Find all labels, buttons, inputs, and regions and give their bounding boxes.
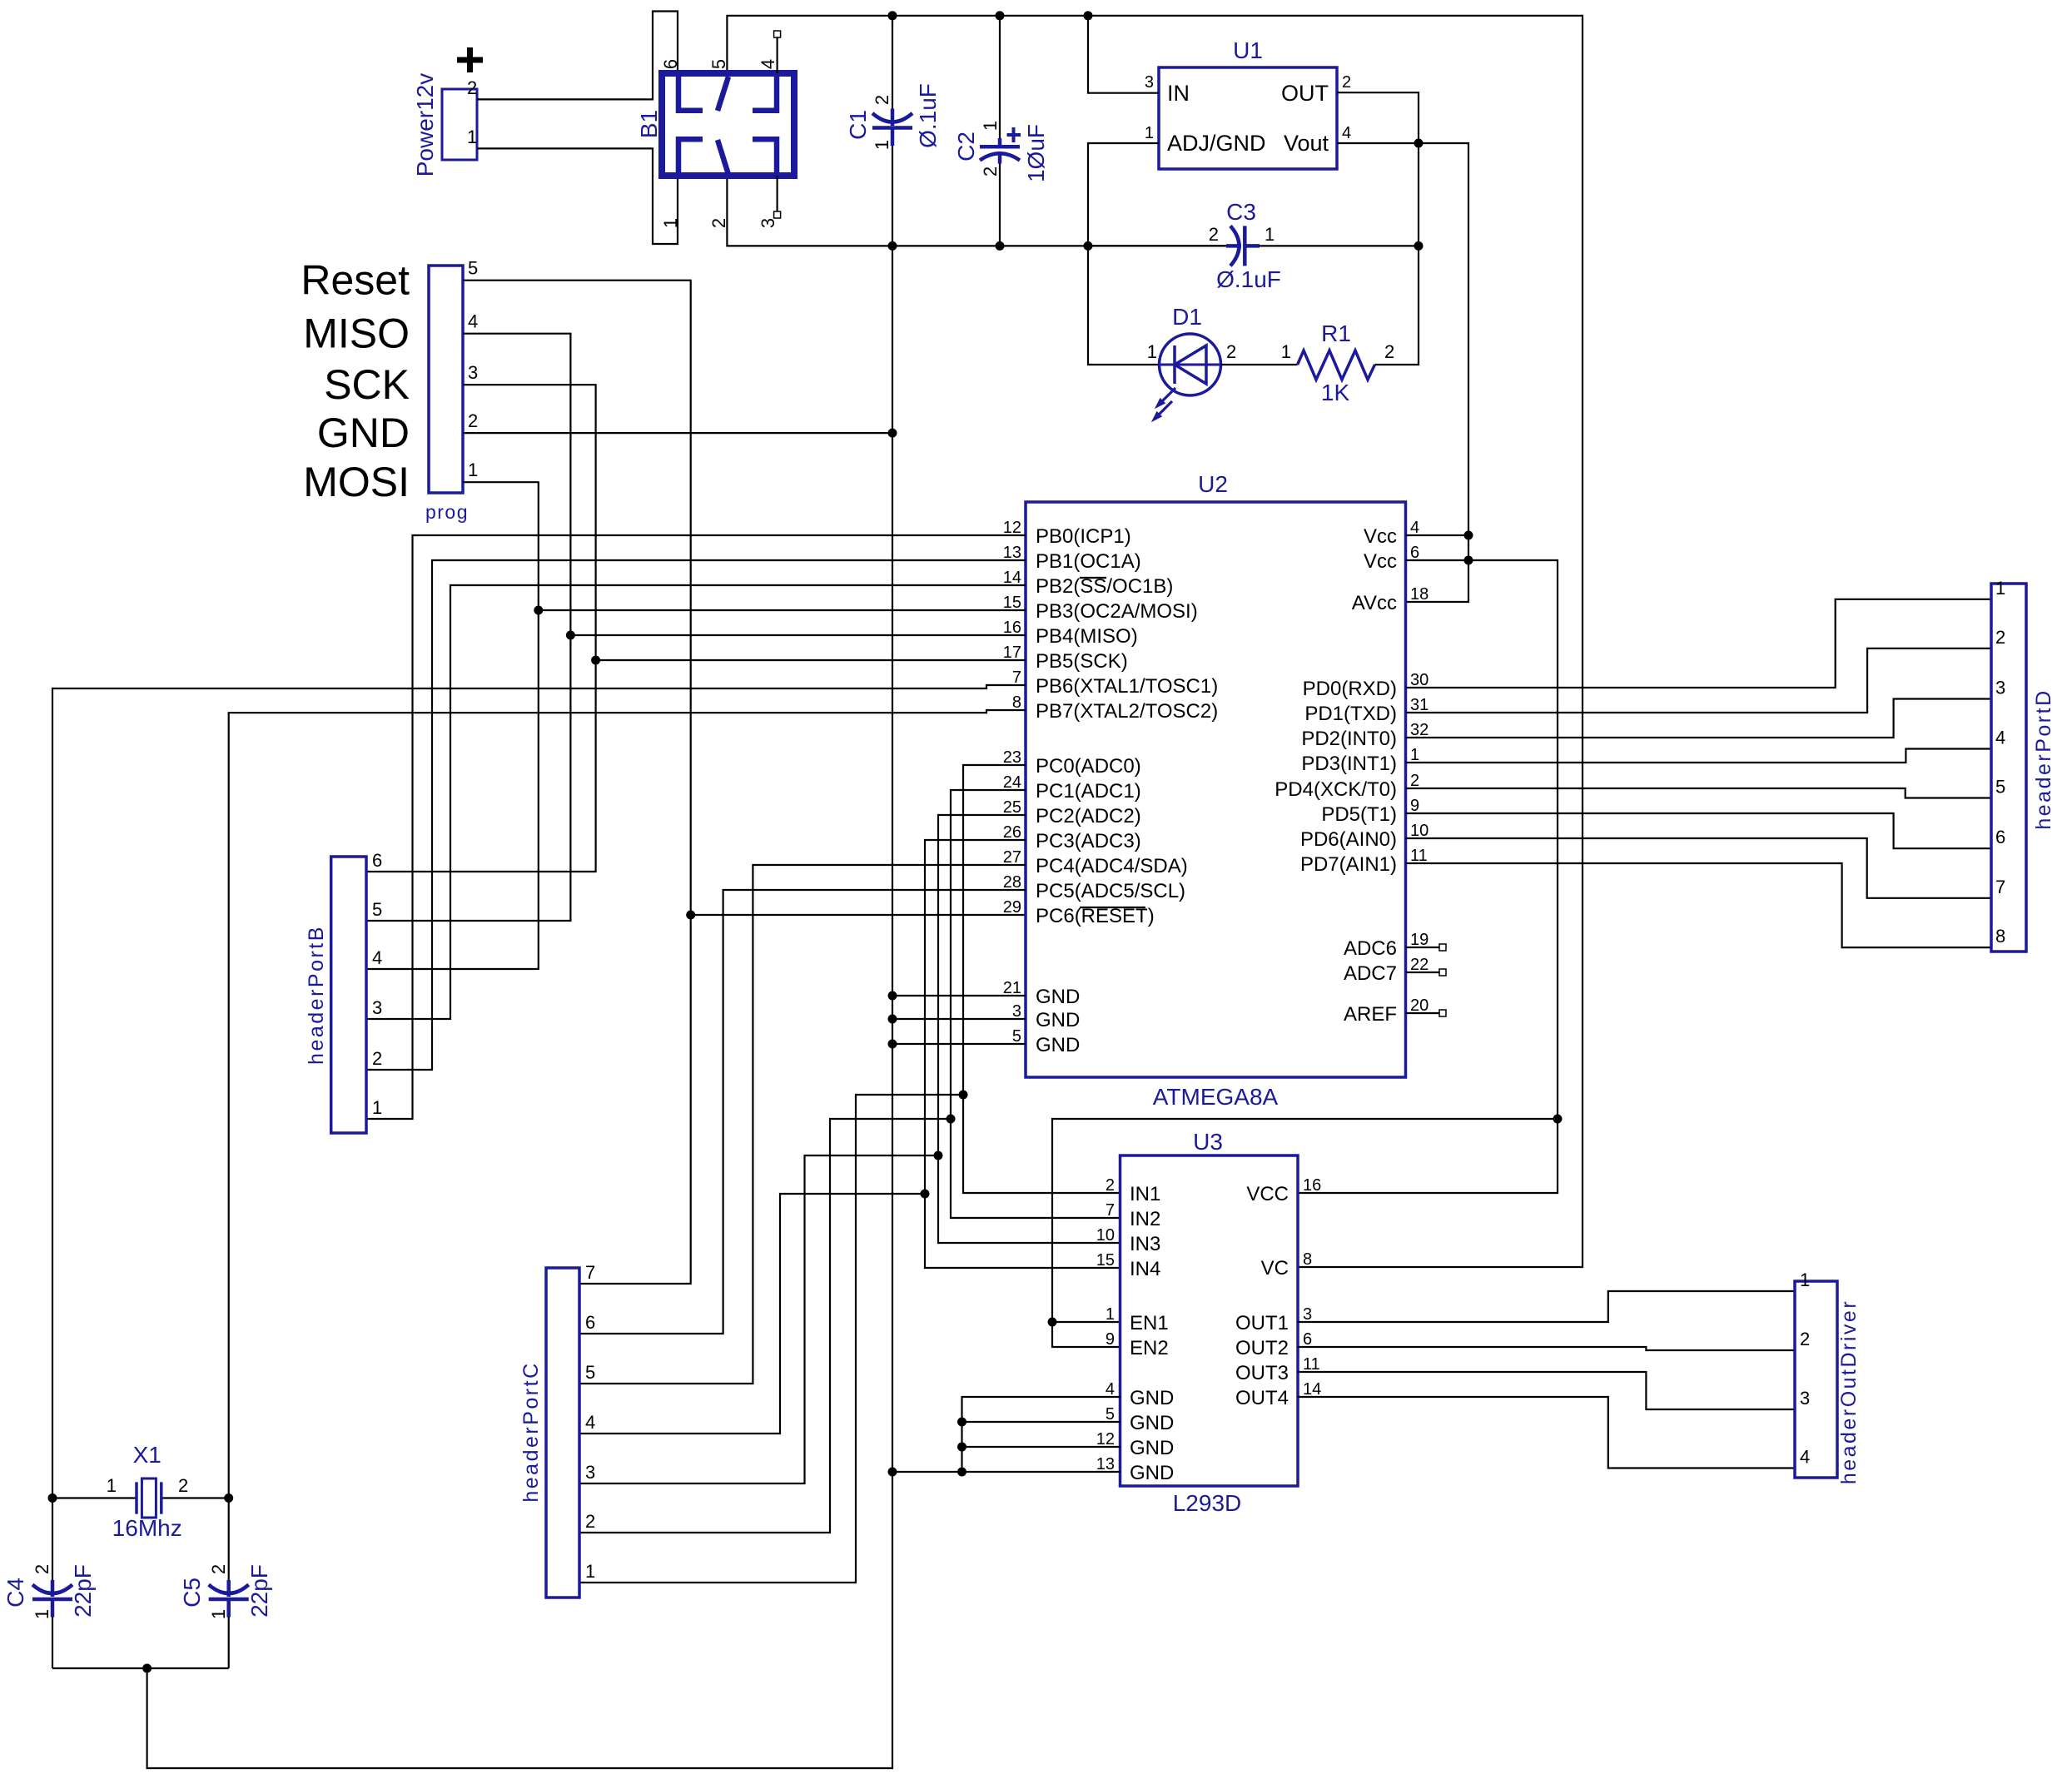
svg-text:1: 1 <box>1995 578 2005 599</box>
svg-text:1: 1 <box>32 1609 52 1619</box>
svg-text:3: 3 <box>1145 73 1154 92</box>
svg-text:6: 6 <box>372 850 382 871</box>
svg-text:1: 1 <box>1145 124 1154 142</box>
svg-text:MOSI: MOSI <box>303 459 410 505</box>
svg-text:ADC7: ADC7 <box>1344 962 1397 985</box>
svg-text:2: 2 <box>1995 627 2005 648</box>
svg-text:Vcc: Vcc <box>1364 525 1397 548</box>
svg-text:VC: VC <box>1261 1257 1289 1280</box>
svg-text:1: 1 <box>468 460 478 480</box>
svg-text:10: 10 <box>1096 1226 1115 1245</box>
svg-text:1: 1 <box>872 140 892 150</box>
svg-text:4: 4 <box>1342 124 1351 142</box>
svg-text:6: 6 <box>660 59 681 69</box>
svg-text:2: 2 <box>980 166 1001 176</box>
svg-text:1: 1 <box>660 218 681 228</box>
svg-text:2: 2 <box>178 1475 188 1496</box>
svg-text:24: 24 <box>1003 773 1021 792</box>
svg-text:GND: GND <box>1036 1034 1080 1056</box>
svg-text:Vout: Vout <box>1284 131 1329 156</box>
svg-text:U3: U3 <box>1193 1129 1223 1155</box>
svg-text:19: 19 <box>1410 931 1429 949</box>
svg-text:23: 23 <box>1003 748 1021 767</box>
svg-text:headerPortC: headerPortC <box>519 1361 543 1502</box>
svg-text:22: 22 <box>1410 956 1429 974</box>
svg-text:5: 5 <box>1012 1027 1021 1046</box>
svg-text:2: 2 <box>708 218 729 228</box>
svg-text:C3: C3 <box>1226 199 1256 225</box>
svg-text:4: 4 <box>758 59 778 69</box>
svg-text:D1: D1 <box>1172 304 1202 330</box>
svg-text:2: 2 <box>372 1048 382 1069</box>
svg-text:11: 11 <box>1410 847 1428 865</box>
svg-text:GND: GND <box>1130 1412 1174 1434</box>
svg-text:OUT2: OUT2 <box>1235 1337 1289 1359</box>
svg-text:3: 3 <box>1800 1388 1810 1409</box>
svg-text:IN1: IN1 <box>1130 1183 1160 1205</box>
svg-text:18: 18 <box>1410 585 1429 604</box>
svg-text:IN: IN <box>1167 81 1190 106</box>
svg-text:2: 2 <box>585 1511 595 1532</box>
svg-text:headerPortB: headerPortB <box>305 925 328 1065</box>
svg-text:EN1: EN1 <box>1130 1312 1169 1334</box>
svg-text:PB4(MISO): PB4(MISO) <box>1036 625 1138 648</box>
svg-text:1: 1 <box>1800 1270 1810 1290</box>
svg-text:ADJ/GND: ADJ/GND <box>1167 131 1266 156</box>
svg-text:Reset: Reset <box>301 257 410 304</box>
svg-text:8: 8 <box>1012 693 1021 712</box>
svg-text:IN3: IN3 <box>1130 1233 1160 1255</box>
svg-text:12: 12 <box>1003 519 1021 537</box>
svg-text:IN4: IN4 <box>1130 1258 1160 1280</box>
svg-text:22pF: 22pF <box>246 1564 272 1618</box>
svg-text:3: 3 <box>1995 678 2005 698</box>
svg-text:15: 15 <box>1096 1251 1115 1270</box>
svg-text:ADC6: ADC6 <box>1344 937 1397 960</box>
svg-text:Vcc: Vcc <box>1364 550 1397 573</box>
svg-text:PD6(AIN0): PD6(AIN0) <box>1300 828 1397 851</box>
svg-text:GND: GND <box>1130 1437 1174 1459</box>
svg-text:C2: C2 <box>953 132 979 162</box>
svg-text:29: 29 <box>1003 898 1021 917</box>
svg-text:2: 2 <box>1106 1176 1115 1195</box>
svg-text:9: 9 <box>1410 797 1419 815</box>
svg-text:2: 2 <box>208 1564 229 1574</box>
svg-text:L293D: L293D <box>1173 1490 1242 1516</box>
svg-text:4: 4 <box>1410 519 1419 537</box>
svg-text:5: 5 <box>468 258 478 279</box>
svg-text:16: 16 <box>1303 1176 1321 1195</box>
svg-text:20: 20 <box>1410 996 1429 1015</box>
svg-text:U1: U1 <box>1233 37 1263 63</box>
svg-text:5: 5 <box>372 899 382 920</box>
svg-text:Ø.1uF: Ø.1uF <box>1216 266 1281 292</box>
svg-text:26: 26 <box>1003 823 1021 842</box>
svg-text:PB7(XTAL2/TOSC2): PB7(XTAL2/TOSC2) <box>1036 700 1218 723</box>
svg-text:7: 7 <box>585 1262 595 1283</box>
svg-text:6: 6 <box>1303 1330 1312 1349</box>
svg-text:PC4(ADC4/SDA): PC4(ADC4/SDA) <box>1036 855 1188 877</box>
svg-text:2: 2 <box>1800 1329 1810 1349</box>
svg-text:PD3(INT1): PD3(INT1) <box>1301 753 1397 775</box>
svg-text:13: 13 <box>1003 544 1021 562</box>
svg-text:5: 5 <box>1995 777 2005 798</box>
svg-text:1: 1 <box>208 1609 229 1619</box>
svg-text:2: 2 <box>468 410 478 431</box>
svg-text:PB5(SCK): PB5(SCK) <box>1036 650 1128 673</box>
svg-text:Ø.1uF: Ø.1uF <box>915 83 941 148</box>
svg-text:OUT3: OUT3 <box>1235 1362 1289 1384</box>
svg-text:PB6(XTAL1/TOSC1): PB6(XTAL1/TOSC1) <box>1036 675 1218 698</box>
svg-text:R1: R1 <box>1321 321 1351 346</box>
svg-text:10: 10 <box>1410 822 1429 840</box>
svg-text:11: 11 <box>1303 1355 1320 1374</box>
svg-text:GND: GND <box>1036 1009 1080 1031</box>
svg-text:4: 4 <box>468 311 478 332</box>
svg-text:GND: GND <box>1130 1462 1174 1484</box>
svg-text:3: 3 <box>585 1462 595 1483</box>
svg-text:16: 16 <box>1003 619 1021 637</box>
svg-text:1: 1 <box>585 1561 595 1582</box>
svg-text:OUT1: OUT1 <box>1235 1312 1289 1334</box>
svg-text:MISO: MISO <box>303 311 410 357</box>
svg-text:4: 4 <box>372 947 382 968</box>
svg-text:16Mhz: 16Mhz <box>112 1515 182 1541</box>
svg-text:SCK: SCK <box>324 361 410 408</box>
svg-text:PC3(ADC3): PC3(ADC3) <box>1036 830 1141 852</box>
svg-text:PD2(INT0): PD2(INT0) <box>1301 728 1397 750</box>
svg-text:EN2: EN2 <box>1130 1337 1169 1359</box>
svg-text:PC2(ADC2): PC2(ADC2) <box>1036 805 1141 827</box>
svg-text:PD1(TXD): PD1(TXD) <box>1304 703 1397 725</box>
svg-text:28: 28 <box>1003 873 1021 892</box>
svg-text:1: 1 <box>1281 341 1291 362</box>
svg-text:3: 3 <box>1303 1305 1312 1324</box>
svg-text:9: 9 <box>1106 1330 1115 1349</box>
svg-text:GND: GND <box>1036 986 1080 1008</box>
svg-text:PD0(RXD): PD0(RXD) <box>1303 678 1397 700</box>
svg-text:1: 1 <box>1265 224 1275 245</box>
svg-text:4: 4 <box>585 1412 595 1433</box>
svg-text:1: 1 <box>980 121 1001 131</box>
svg-text:2: 2 <box>872 95 892 105</box>
svg-text:PD4(XCK/T0): PD4(XCK/T0) <box>1275 778 1397 801</box>
svg-text:1K: 1K <box>1321 380 1350 405</box>
svg-text:2: 2 <box>1384 341 1394 362</box>
svg-text:GND: GND <box>317 410 410 456</box>
svg-text:17: 17 <box>1003 644 1021 662</box>
svg-text:PC5(ADC5/SCL): PC5(ADC5/SCL) <box>1036 880 1185 902</box>
svg-text:AREF: AREF <box>1344 1003 1397 1026</box>
svg-text:VCC: VCC <box>1246 1183 1289 1205</box>
svg-text:X1: X1 <box>133 1442 161 1468</box>
svg-text:OUT4: OUT4 <box>1235 1387 1289 1409</box>
svg-text:1: 1 <box>1410 746 1419 764</box>
svg-text:U2: U2 <box>1198 471 1228 497</box>
svg-text:B1: B1 <box>636 110 662 138</box>
svg-text:4: 4 <box>1800 1447 1810 1468</box>
svg-text:GND: GND <box>1130 1387 1174 1409</box>
svg-text:3: 3 <box>372 997 382 1018</box>
svg-text:7: 7 <box>1106 1201 1115 1220</box>
svg-text:PB3(OC2A/MOSI): PB3(OC2A/MOSI) <box>1036 600 1198 623</box>
svg-text:C1: C1 <box>845 110 871 140</box>
svg-text:22pF: 22pF <box>70 1564 96 1618</box>
svg-text:1: 1 <box>467 127 477 147</box>
svg-text:6: 6 <box>585 1312 595 1333</box>
svg-text:4: 4 <box>1106 1380 1115 1399</box>
svg-text:AVcc: AVcc <box>1352 592 1397 614</box>
svg-text:14: 14 <box>1003 569 1021 587</box>
svg-text:6: 6 <box>1410 544 1419 562</box>
svg-text:5: 5 <box>1106 1405 1115 1424</box>
svg-text:2: 2 <box>32 1564 52 1574</box>
svg-text:1ØuF: 1ØuF <box>1023 124 1049 182</box>
svg-text:headerOutDriver: headerOutDriver <box>1837 1299 1861 1484</box>
svg-text:C4: C4 <box>2 1578 28 1608</box>
svg-text:1: 1 <box>372 1097 382 1118</box>
svg-text:32: 32 <box>1410 721 1429 739</box>
svg-text:PD7(AIN1): PD7(AIN1) <box>1300 853 1397 876</box>
svg-text:12: 12 <box>1096 1430 1115 1449</box>
svg-text:25: 25 <box>1003 798 1021 817</box>
svg-text:1: 1 <box>1106 1305 1115 1324</box>
svg-text:2: 2 <box>1209 224 1219 245</box>
svg-text:PC0(ADC0): PC0(ADC0) <box>1036 755 1141 778</box>
svg-text:3: 3 <box>758 218 778 228</box>
svg-text:IN2: IN2 <box>1130 1208 1160 1230</box>
svg-text:OUT: OUT <box>1281 81 1329 106</box>
svg-text:5: 5 <box>585 1362 595 1383</box>
svg-text:headerPortD: headerPortD <box>2032 688 2055 829</box>
svg-text:14: 14 <box>1303 1380 1321 1399</box>
svg-text:30: 30 <box>1410 671 1429 689</box>
svg-text:PB0(ICP1): PB0(ICP1) <box>1036 525 1131 548</box>
svg-text:2: 2 <box>467 77 477 98</box>
svg-text:5: 5 <box>708 59 729 69</box>
svg-text:7: 7 <box>1995 877 2005 897</box>
svg-text:3: 3 <box>468 362 478 383</box>
svg-text:C5: C5 <box>179 1578 205 1608</box>
svg-text:ATMEGA8A: ATMEGA8A <box>1153 1084 1279 1110</box>
svg-text:8: 8 <box>1995 926 2005 947</box>
svg-text:prog: prog <box>425 501 469 523</box>
svg-text:Power12v: Power12v <box>412 73 438 177</box>
svg-text:1: 1 <box>1147 341 1157 362</box>
svg-text:13: 13 <box>1096 1455 1115 1473</box>
svg-text:2: 2 <box>1410 772 1419 790</box>
svg-text:3: 3 <box>1012 1002 1021 1021</box>
svg-text:PD5(T1): PD5(T1) <box>1321 803 1397 826</box>
svg-text:8: 8 <box>1303 1250 1312 1269</box>
svg-text:15: 15 <box>1003 594 1021 612</box>
svg-text:2: 2 <box>1342 73 1351 92</box>
svg-text:27: 27 <box>1003 848 1021 867</box>
svg-text:7: 7 <box>1012 668 1021 687</box>
svg-text:1: 1 <box>107 1475 117 1496</box>
svg-text:4: 4 <box>1995 728 2005 748</box>
svg-text:21: 21 <box>1003 979 1021 997</box>
svg-text:6: 6 <box>1995 827 2005 847</box>
svg-text:PB1(OC1A): PB1(OC1A) <box>1036 550 1141 573</box>
svg-text:2: 2 <box>1226 341 1236 362</box>
svg-text:PC1(ADC1): PC1(ADC1) <box>1036 780 1141 803</box>
svg-text:31: 31 <box>1410 696 1429 714</box>
